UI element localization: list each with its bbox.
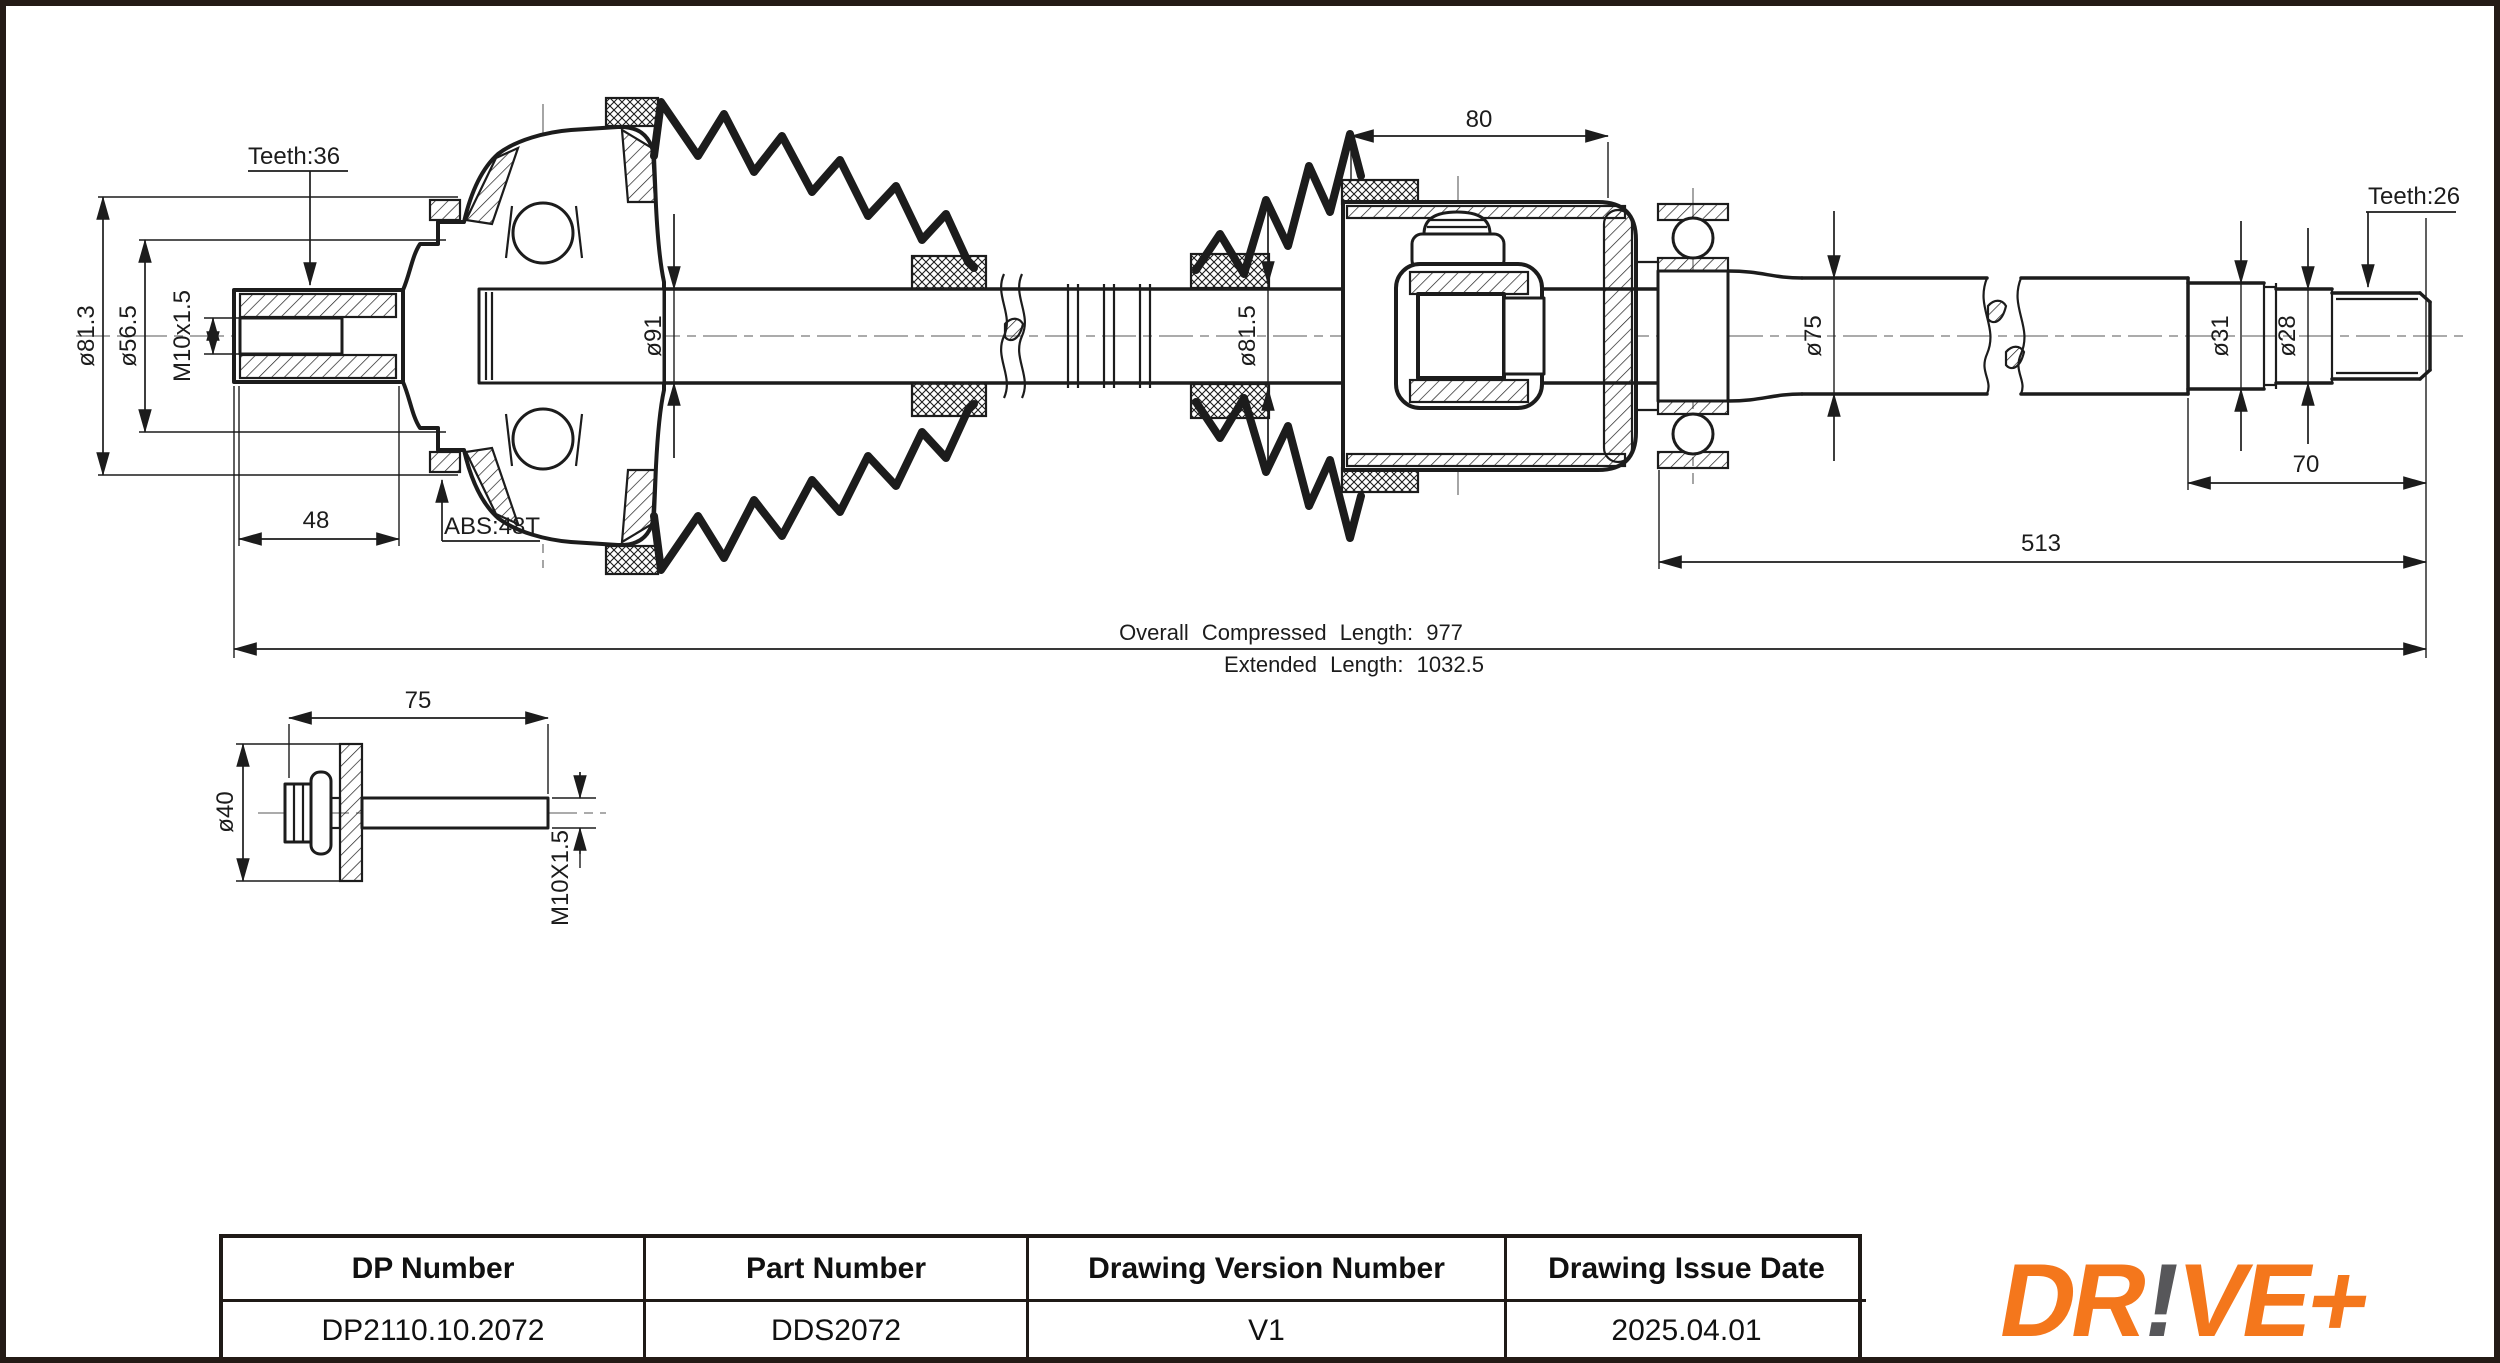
label-dia-91: ø91 — [640, 315, 667, 356]
header-dp-number: DP Number — [223, 1238, 646, 1302]
value-drawing-version: V1 — [1029, 1302, 1507, 1359]
title-block: DP Number Part Number Drawing Version Nu… — [219, 1234, 1862, 1363]
label-48: 48 — [303, 507, 330, 534]
inner-joint-housing — [1343, 202, 1658, 470]
grease-cap — [1424, 212, 1490, 234]
axle-drawing: Teeth:36 ø81.3 ø56.5 M10x1.5 48 ABS:48T … — [6, 6, 2500, 1166]
label-extended: Extended Length: 1032.5 — [1224, 652, 1484, 677]
bearing-ball — [513, 409, 573, 469]
label-bolt-dia-40: ø40 — [212, 791, 239, 832]
pinch-bolt: 75 ø40 M10X1.5 — [212, 687, 606, 926]
drawing-sheet: Teeth:36 ø81.3 ø56.5 M10x1.5 48 ABS:48T … — [0, 0, 2500, 1363]
logo-text-ve-plus: VE+ — [2168, 1242, 2376, 1361]
brand-logo: DR!VE+ — [1921, 1246, 2445, 1356]
label-dia-28: ø28 — [2274, 315, 2301, 356]
support-bearing — [1658, 204, 1728, 468]
label-dia-56-5: ø56.5 — [115, 305, 142, 366]
header-drawing-version: Drawing Version Number — [1029, 1238, 1507, 1302]
bearing-ball — [1673, 414, 1713, 454]
abs-ring-top — [430, 200, 460, 220]
abs-ring-bottom — [430, 452, 460, 472]
label-thread-left: M10x1.5 — [169, 290, 196, 382]
value-part-number: DDS2072 — [646, 1302, 1029, 1359]
logo-text-dr: DR — [1991, 1242, 2154, 1361]
label-overall-compressed: Overall Compressed Length: 977 — [1119, 620, 1463, 645]
label-80: 80 — [1466, 106, 1493, 133]
label-513: 513 — [2021, 530, 2061, 557]
label-teeth-left: Teeth:36 — [248, 143, 340, 170]
header-issue-date: Drawing Issue Date — [1507, 1238, 1866, 1302]
label-dia-75: ø75 — [1800, 315, 1827, 356]
label-abs: ABS:48T — [444, 513, 540, 540]
label-teeth-right: Teeth:26 — [2368, 183, 2460, 210]
value-dp-number: DP2110.10.2072 — [223, 1302, 646, 1359]
label-dia-31: ø31 — [2207, 315, 2234, 356]
stub-shaft — [234, 290, 403, 382]
label-dia-81-5: ø81.5 — [1234, 305, 1261, 366]
label-bolt-75: 75 — [405, 687, 432, 714]
bearing-ball — [1673, 218, 1713, 258]
bolt-head — [285, 784, 313, 842]
header-part-number: Part Number — [646, 1238, 1029, 1302]
bearing-ball — [513, 203, 573, 263]
label-70: 70 — [2293, 451, 2320, 478]
bolt-shank — [362, 798, 548, 828]
label-bolt-thread: M10X1.5 — [547, 830, 574, 926]
label-dia-81-3: ø81.3 — [73, 305, 100, 366]
value-issue-date: 2025.04.01 — [1507, 1302, 1866, 1359]
washer — [340, 744, 362, 881]
bolt-flange — [311, 772, 331, 854]
